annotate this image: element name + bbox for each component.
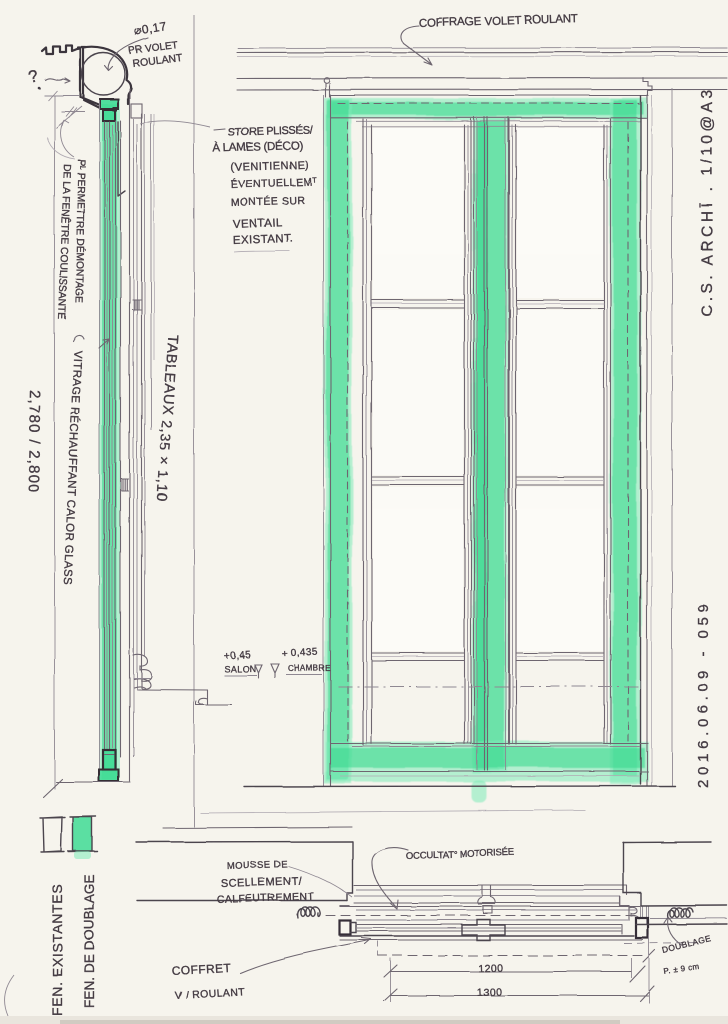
svg-text:2016.06.09 - 059: 2016.06.09 - 059 xyxy=(695,599,712,788)
svg-text:C.S. ARCHĪ . 1/10@A3: C.S. ARCHĪ . 1/10@A3 xyxy=(699,86,716,316)
svg-text:MONTÉE SUR: MONTÉE SUR xyxy=(231,193,305,209)
svg-text:1300: 1300 xyxy=(477,986,502,999)
svg-text:+ 0,435: + 0,435 xyxy=(282,647,319,660)
svg-text:SALON: SALON xyxy=(224,664,257,674)
svg-text:FEN. EXISTANTES: FEN. EXISTANTES xyxy=(49,884,65,1016)
svg-text:MOUSSE DE: MOUSSE DE xyxy=(227,859,288,872)
svg-text:FEN. DE DOUBLAGE: FEN. DE DOUBLAGE xyxy=(82,874,97,1008)
svg-text:+0,45: +0,45 xyxy=(224,650,252,662)
svg-text:VENTAIL: VENTAIL xyxy=(233,217,283,231)
svg-text:EXISTANT.: EXISTANT. xyxy=(233,233,294,247)
svg-text:CHAMBRE: CHAMBRE xyxy=(288,664,331,673)
svg-text:2,780 / 2,800: 2,780 / 2,800 xyxy=(24,390,43,493)
svg-text:1200: 1200 xyxy=(478,962,503,975)
